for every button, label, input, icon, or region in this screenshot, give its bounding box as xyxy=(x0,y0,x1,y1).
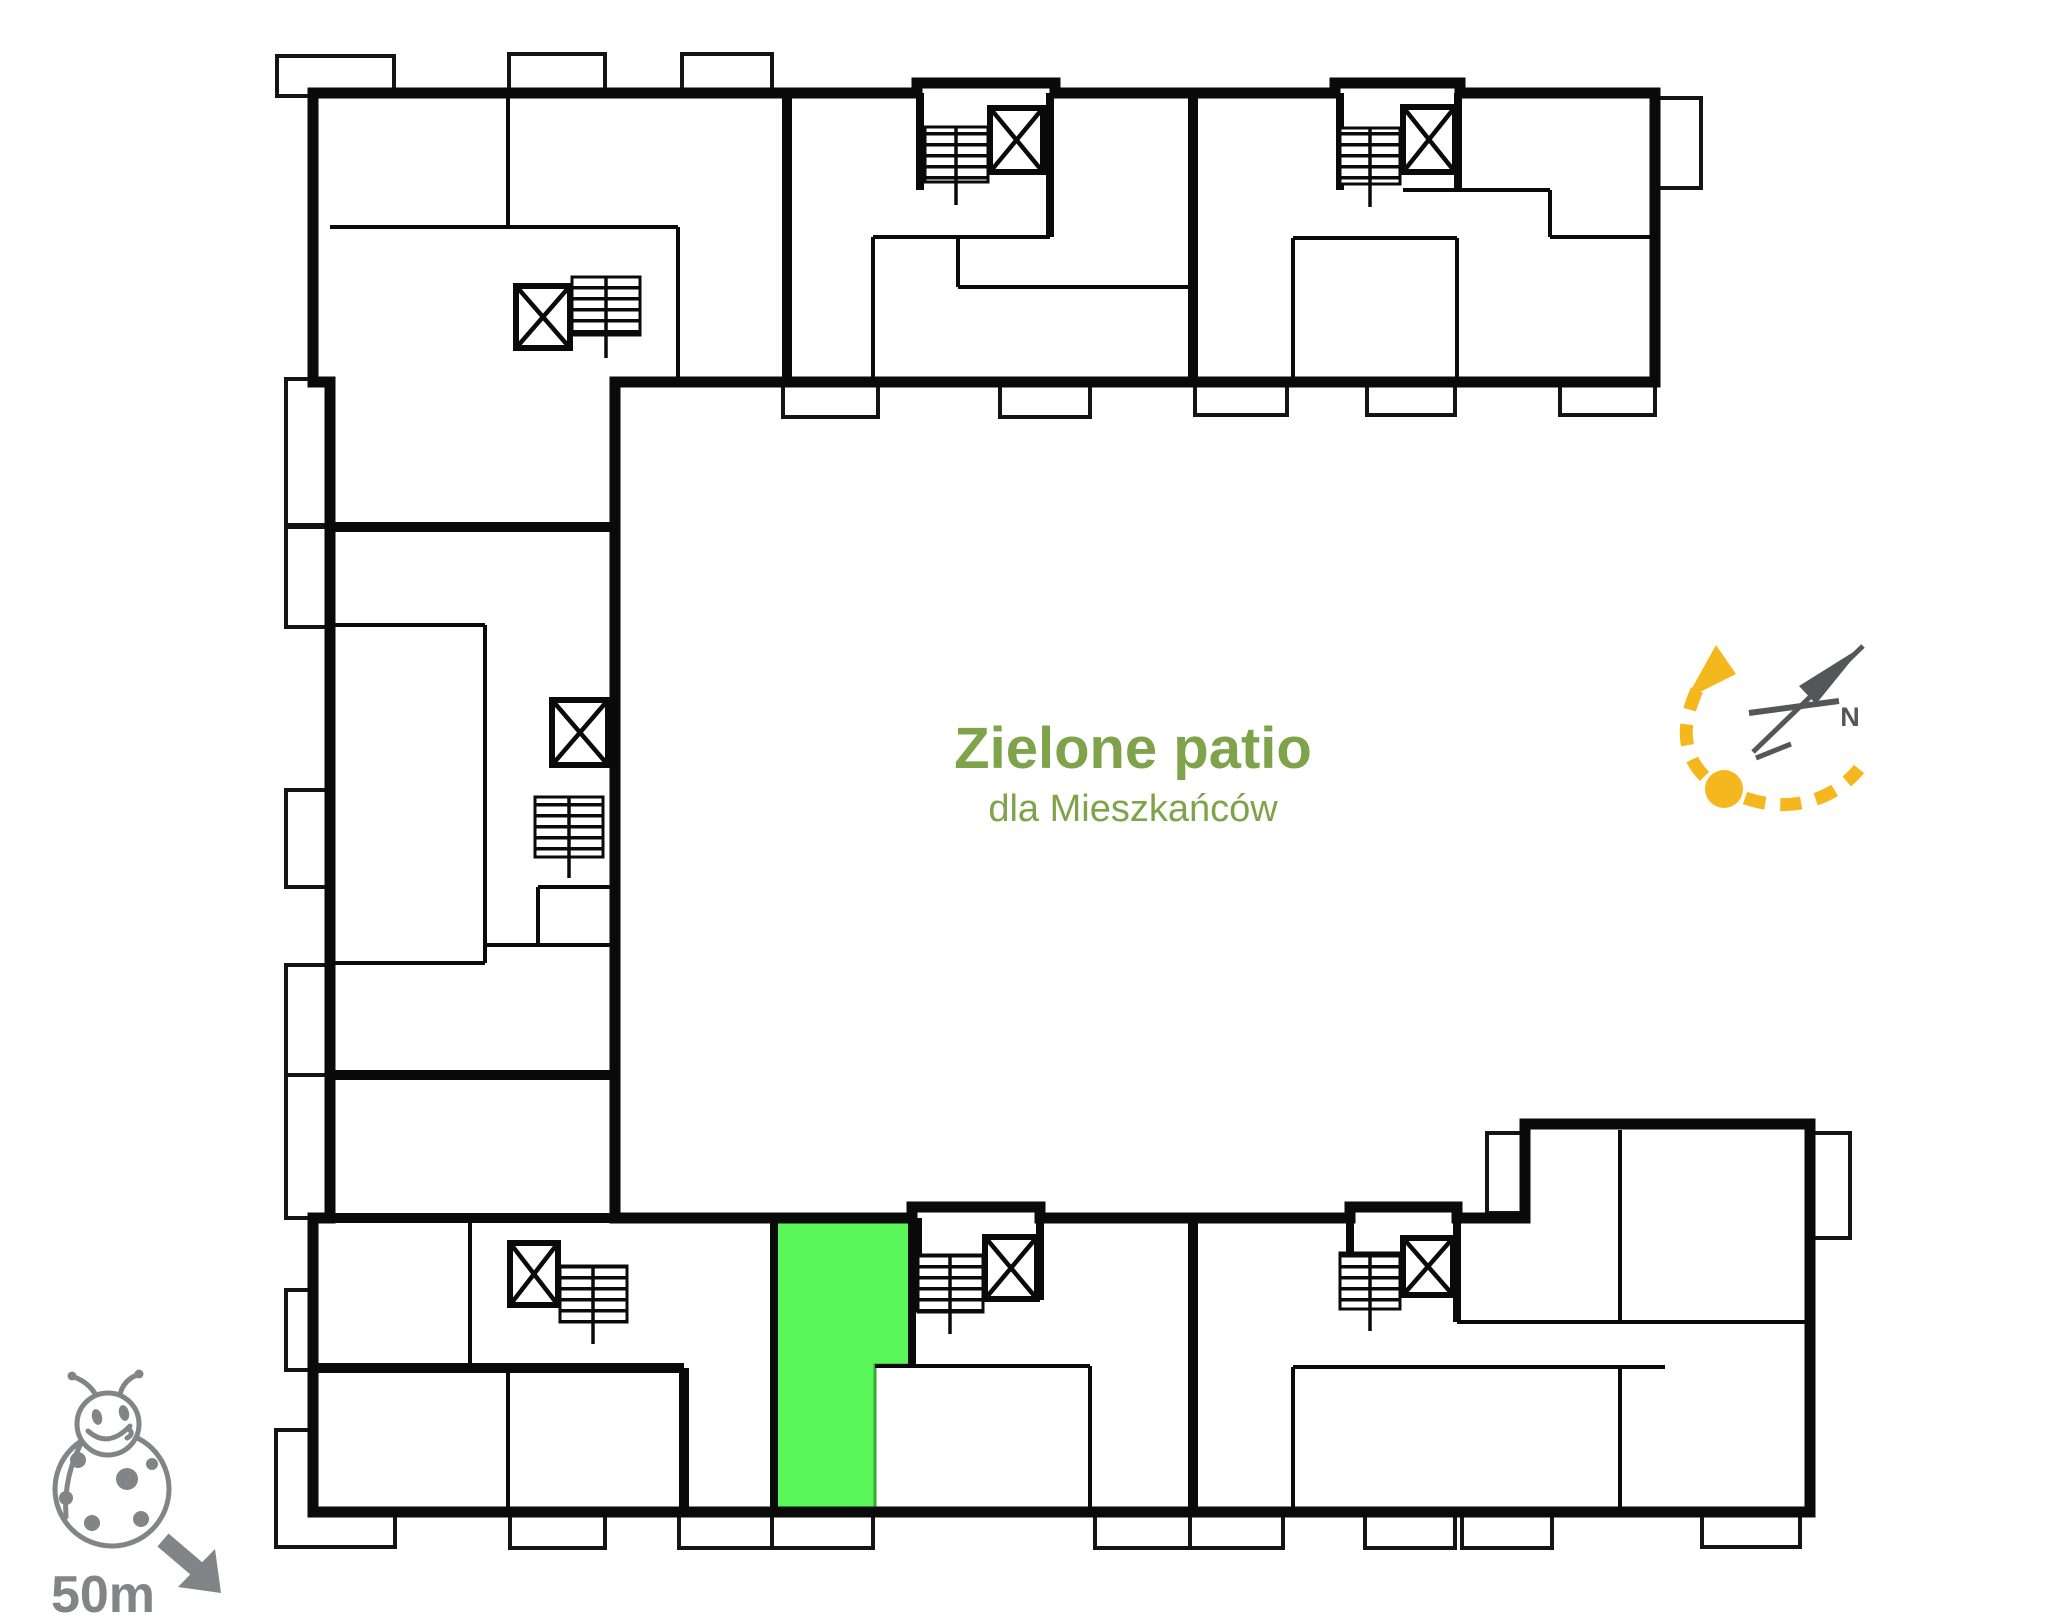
arrow-down-right-icon xyxy=(163,1540,221,1593)
north-compass-icon: N xyxy=(1686,645,1863,808)
patio-title: Zielone patio xyxy=(954,716,1312,781)
balcony xyxy=(1810,1133,1850,1238)
north-label: N xyxy=(1840,702,1860,732)
patio-subtitle: dla Mieszkańców xyxy=(988,788,1278,830)
compass-sun-dot xyxy=(1705,770,1743,808)
balcony xyxy=(1655,98,1701,188)
compass-sun-path-lower xyxy=(1745,769,1859,805)
floor-plan: Zielone patio dla Mieszkańców N xyxy=(0,0,2048,1623)
compass-sun-path-upper xyxy=(1686,690,1705,777)
scale-label: 50m xyxy=(51,1566,155,1623)
floor-plan-page: Zielone patio dla Mieszkańców N xyxy=(0,0,2048,1623)
balcony xyxy=(1487,1133,1525,1213)
ladybug-icon xyxy=(55,1370,169,1547)
